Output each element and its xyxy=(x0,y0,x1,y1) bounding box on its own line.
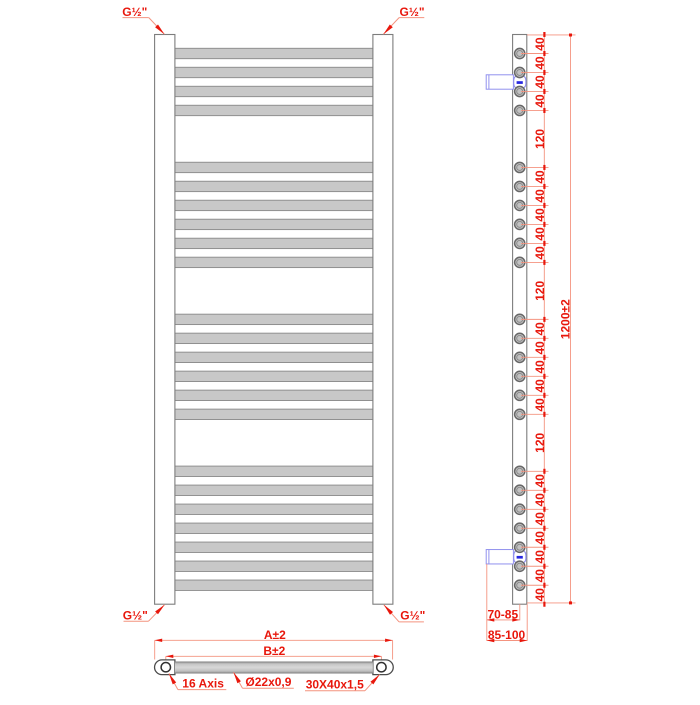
svg-text:40: 40 xyxy=(533,474,547,488)
svg-text:40: 40 xyxy=(533,94,547,108)
svg-text:120: 120 xyxy=(533,432,547,452)
svg-text:40: 40 xyxy=(533,56,547,70)
svg-text:G½": G½" xyxy=(400,5,425,19)
svg-text:40: 40 xyxy=(533,360,547,374)
svg-text:40: 40 xyxy=(533,531,547,545)
svg-text:G½": G½" xyxy=(400,609,425,623)
svg-text:85-100: 85-100 xyxy=(488,628,526,642)
svg-text:B±2: B±2 xyxy=(263,644,285,658)
svg-text:40: 40 xyxy=(533,588,547,602)
svg-text:40: 40 xyxy=(533,246,547,260)
svg-text:A±2: A±2 xyxy=(264,628,286,642)
svg-text:30X40x1,5: 30X40x1,5 xyxy=(306,677,364,691)
svg-text:40: 40 xyxy=(533,512,547,526)
svg-text:1200±2: 1200±2 xyxy=(559,299,573,339)
svg-text:120: 120 xyxy=(533,281,547,301)
svg-text:40: 40 xyxy=(533,189,547,203)
svg-text:40: 40 xyxy=(533,170,547,184)
svg-text:40: 40 xyxy=(533,398,547,412)
svg-text:40: 40 xyxy=(533,227,547,241)
svg-text:G½": G½" xyxy=(122,5,147,19)
svg-text:16 Axis: 16 Axis xyxy=(182,676,224,690)
svg-text:40: 40 xyxy=(533,322,547,336)
svg-text:40: 40 xyxy=(533,379,547,393)
svg-text:Ø22x0,9: Ø22x0,9 xyxy=(245,675,291,689)
svg-text:40: 40 xyxy=(533,569,547,583)
svg-text:G½": G½" xyxy=(123,609,148,623)
svg-text:70-85: 70-85 xyxy=(487,607,518,621)
svg-text:120: 120 xyxy=(533,129,547,149)
svg-text:40: 40 xyxy=(533,208,547,222)
svg-text:40: 40 xyxy=(533,341,547,355)
svg-text:40: 40 xyxy=(533,75,547,89)
svg-text:40: 40 xyxy=(533,37,547,51)
svg-text:40: 40 xyxy=(533,493,547,507)
svg-text:40: 40 xyxy=(533,550,547,564)
